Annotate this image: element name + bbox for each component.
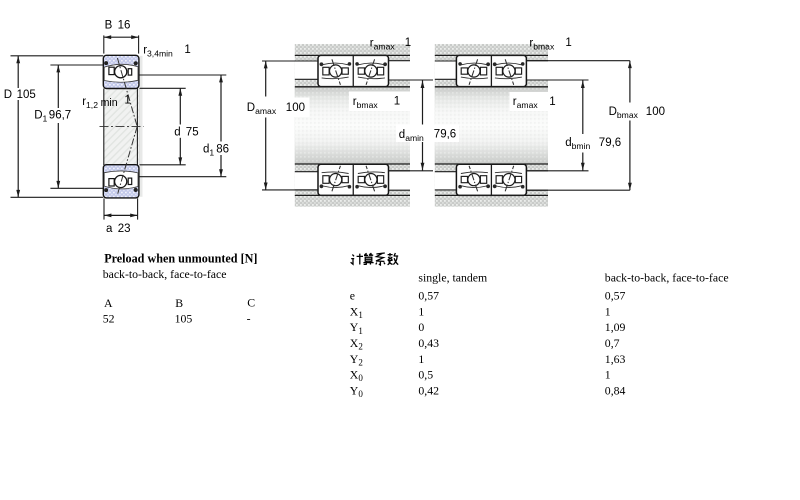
svg-text:79,6: 79,6: [599, 137, 621, 149]
svg-text:B: B: [105, 20, 113, 32]
svg-text:1: 1: [605, 368, 611, 382]
svg-text:1: 1: [184, 44, 190, 56]
svg-text:single, tandem: single, tandem: [418, 271, 487, 285]
svg-text:0,5: 0,5: [418, 368, 433, 382]
svg-text:96,7: 96,7: [49, 110, 71, 122]
svg-text:1: 1: [605, 304, 611, 318]
svg-text:52: 52: [103, 312, 115, 326]
svg-text:16: 16: [118, 20, 131, 32]
svg-text:0,43: 0,43: [418, 336, 439, 350]
svg-text:0,57: 0,57: [418, 289, 439, 303]
svg-text:100: 100: [286, 102, 305, 114]
svg-text:23: 23: [118, 223, 131, 235]
svg-text:C: C: [247, 295, 255, 309]
svg-text:0,57: 0,57: [605, 289, 626, 303]
svg-text:-: -: [247, 312, 251, 326]
svg-text:0,42: 0,42: [418, 383, 439, 397]
svg-text:back-to-back, face-to-face: back-to-back, face-to-face: [103, 267, 227, 281]
svg-text:105: 105: [175, 312, 193, 326]
svg-text:A: A: [104, 296, 113, 310]
svg-text:1,09: 1,09: [605, 320, 626, 334]
svg-text:1: 1: [124, 95, 130, 107]
svg-text:0,84: 0,84: [605, 383, 626, 397]
svg-text:0: 0: [418, 320, 424, 334]
svg-text:100: 100: [646, 106, 665, 118]
svg-text:1: 1: [405, 37, 411, 49]
svg-text:0,7: 0,7: [605, 336, 620, 350]
svg-text:min: min: [101, 97, 118, 109]
svg-text:1,63: 1,63: [605, 352, 626, 366]
svg-text:1: 1: [565, 37, 571, 49]
svg-text:D: D: [4, 89, 12, 101]
svg-text:79,6: 79,6: [434, 128, 456, 140]
svg-text:a: a: [106, 223, 113, 235]
svg-text:1: 1: [418, 352, 424, 366]
svg-text:1: 1: [418, 304, 424, 318]
svg-text:1: 1: [394, 95, 400, 107]
svg-text:1: 1: [549, 96, 555, 108]
svg-text:75: 75: [186, 126, 199, 138]
svg-text:back-to-back, face-to-face: back-to-back, face-to-face: [605, 271, 729, 285]
svg-text:d: d: [174, 126, 180, 138]
svg-text:B: B: [175, 296, 183, 310]
svg-text:86: 86: [216, 144, 229, 156]
svg-text:e: e: [350, 289, 355, 303]
svg-text:Preload when unmounted [N]: Preload when unmounted [N]: [104, 252, 257, 266]
svg-text:105: 105: [17, 89, 36, 101]
